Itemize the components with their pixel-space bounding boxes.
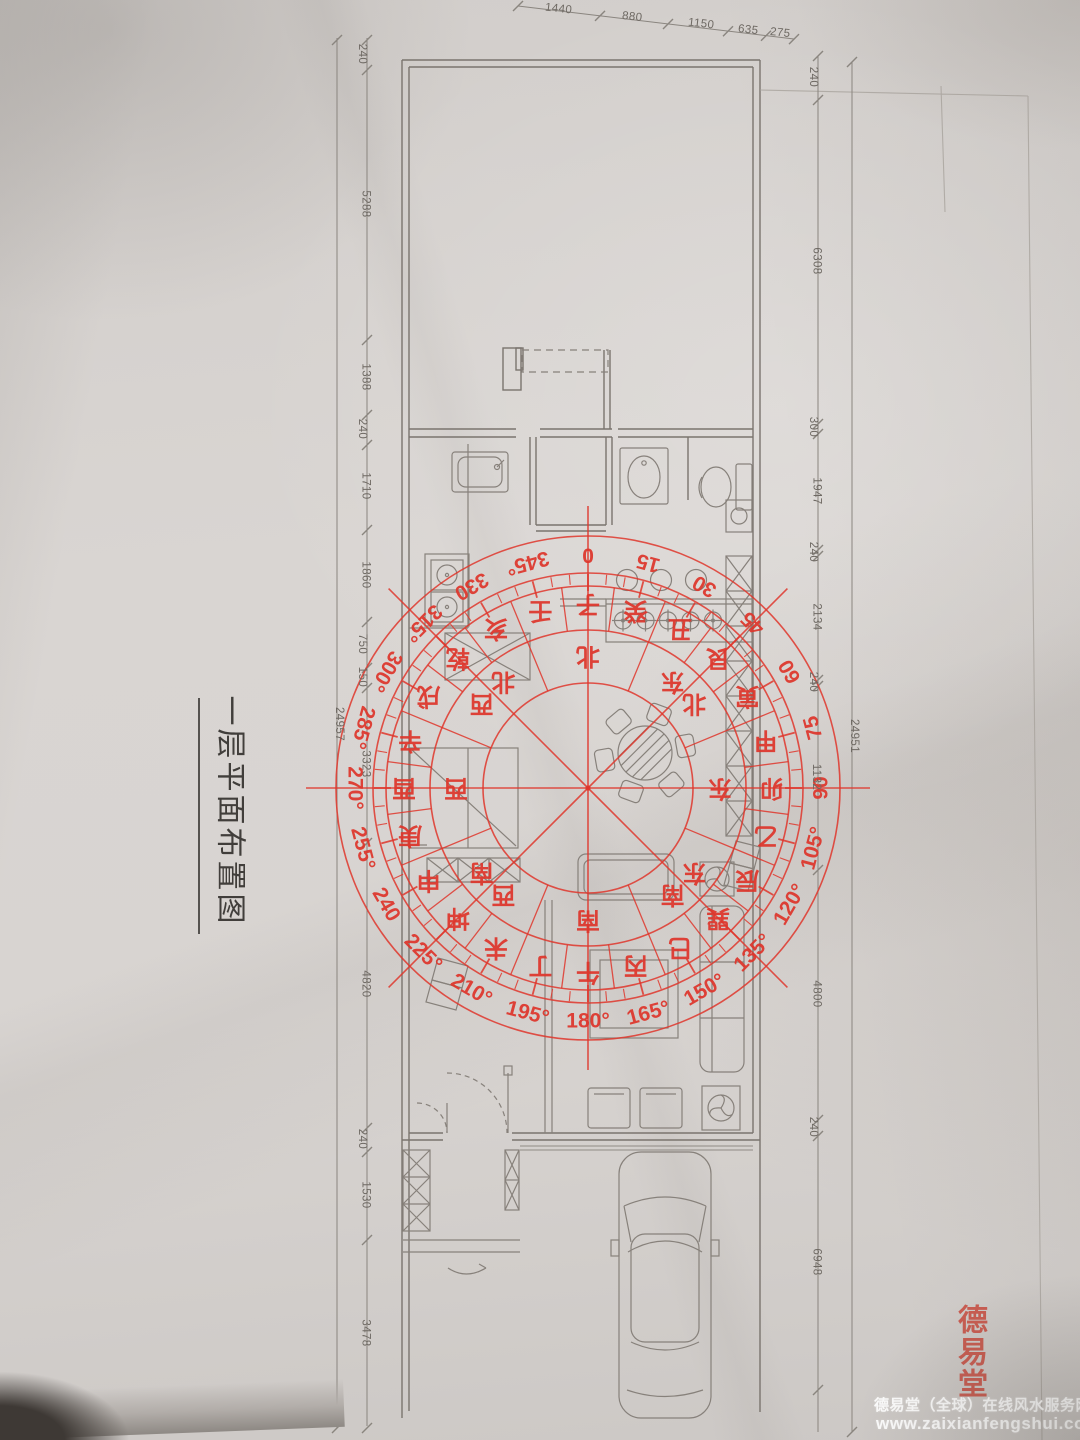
compass-label: 西 — [470, 690, 494, 717]
dimension-label: 4820 — [360, 970, 372, 997]
compass-label: 300° — [365, 647, 407, 696]
compass-label: 15 — [634, 549, 663, 577]
compass-label: 255° — [346, 824, 379, 872]
dimension-label: 635 — [737, 23, 759, 37]
compass-label: 北 — [491, 668, 515, 695]
compass-label: 癸 — [623, 597, 649, 624]
compass-label: 180° — [566, 1010, 609, 1033]
compass-label: 寅 — [735, 683, 759, 711]
compass-label: 30 — [689, 570, 721, 602]
compass-label: 南 — [661, 881, 685, 908]
dimension-label: 240 — [807, 67, 819, 87]
dimension-label: 240 — [356, 419, 368, 439]
dimension-label: 6948 — [811, 1248, 823, 1275]
compass-label: 210° — [447, 969, 496, 1011]
compass-label: 285° — [346, 704, 379, 752]
dimension-label: 3478 — [360, 1319, 372, 1346]
compass-label: 子 — [576, 591, 600, 618]
dimension-label: 5288 — [360, 190, 372, 217]
luopan-compass-overlay: 0153045607590105°120°135°150°165°180°195… — [0, 0, 1080, 1440]
dimension-label: 1132 — [810, 764, 822, 790]
compass-label: 辰 — [735, 867, 759, 894]
dimension-label: 240 — [356, 1129, 368, 1149]
dimension-label: 150 — [356, 667, 368, 687]
compass-label: 195° — [504, 996, 552, 1029]
dimension-label: 240 — [807, 542, 819, 562]
compass-label: 西 — [444, 775, 468, 802]
compass-label: 午 — [576, 959, 600, 987]
dimension-label: 1860 — [360, 561, 372, 588]
compass-label: 120° — [769, 880, 811, 929]
compass-label: 未 — [484, 934, 508, 961]
compass-label: 75 — [799, 713, 827, 742]
compass-label: 150° — [680, 969, 729, 1011]
dimension-label: 1710 — [360, 472, 372, 499]
compass-label: 坤 — [446, 905, 470, 932]
dimension-label: 300 — [807, 417, 819, 437]
compass-label: 亥 — [484, 615, 508, 643]
dimension-label: 1530 — [360, 1181, 372, 1208]
watermark-url: www.zaixianfengshui.com — [876, 1414, 1080, 1434]
compass-label: 60 — [774, 656, 806, 688]
dimension-label: 6308 — [811, 247, 823, 274]
compass-label: 卯 — [760, 775, 784, 802]
plan-title: 一层平面布置图 — [204, 694, 256, 925]
dimension-label: 750 — [356, 634, 368, 654]
compass-label: 北 — [576, 643, 600, 670]
dimension-label: 240 — [807, 672, 819, 692]
compass-label: 东 — [708, 775, 732, 803]
paper-corner-shadow — [0, 1360, 170, 1440]
dimension-label: 240 — [807, 1117, 819, 1137]
photo-paper: 0153045607590105°120°135°150°165°180°195… — [0, 0, 1080, 1440]
dimension-label: 880 — [621, 10, 643, 24]
compass-label: 东 — [682, 859, 706, 887]
title-underline — [198, 698, 200, 934]
dimension-label: 4800 — [811, 980, 823, 1007]
watermark-site-name: 德易堂（全球）在线风水服务网 — [874, 1394, 1080, 1415]
compass-label: 辛 — [398, 727, 422, 755]
compass-label: 345° — [504, 546, 552, 579]
dimension-label: 24951 — [848, 719, 860, 753]
compass-label: 酉 — [392, 775, 416, 802]
compass-label: 165° — [624, 996, 672, 1029]
compass-label: 105° — [796, 824, 829, 872]
compass-label: 壬 — [528, 597, 552, 624]
brand-seal: 德易堂 — [948, 1304, 988, 1400]
dimension-label: 1388 — [360, 363, 372, 390]
compass-label: 丁 — [528, 952, 552, 979]
compass-label: 北 — [682, 690, 706, 717]
compass-label: 丙 — [624, 952, 648, 979]
compass-label: 乾 — [446, 644, 470, 671]
compass-label: 艮 — [705, 644, 730, 671]
dimension-label: 1947 — [811, 477, 823, 504]
dimension-label: 24957 — [333, 707, 345, 741]
compass-label: 巳 — [668, 934, 692, 961]
dimension-label: 240 — [356, 44, 368, 64]
dimension-label: 2134 — [811, 603, 823, 630]
compass-label: 东 — [661, 668, 685, 696]
compass-label: 巽 — [706, 905, 730, 932]
compass-label: 申 — [417, 867, 441, 894]
title-char: 图 — [214, 883, 247, 935]
dimension-label: 275 — [769, 26, 791, 40]
compass-label: 南 — [576, 907, 600, 934]
compass-label: 丑 — [668, 615, 692, 642]
compass-label: 南 — [470, 859, 494, 886]
compass-label: 西 — [491, 881, 515, 908]
compass-label: 0 — [582, 544, 594, 567]
compass-label: 戌 — [417, 683, 441, 710]
dimension-label: 3323 — [360, 750, 372, 777]
compass-label: 甲 — [754, 727, 778, 754]
compass-label: 庚 — [398, 822, 422, 850]
compass-label: 乙 — [754, 822, 778, 849]
